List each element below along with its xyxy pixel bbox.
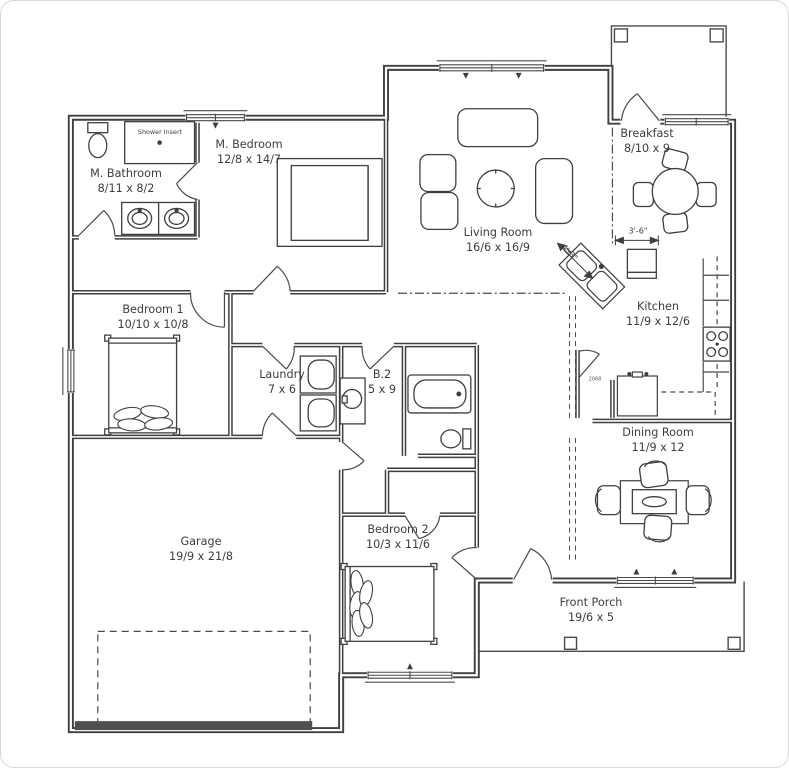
- room-name: M. Bedroom: [215, 138, 282, 153]
- room-label-m-bathroom: M. Bathroom 8/11 x 8/2: [90, 167, 162, 197]
- room-dims: 8/10 x 9: [620, 142, 673, 157]
- vanity-double-sink-icon: [122, 202, 195, 234]
- island-sink-icon: [617, 372, 657, 416]
- room-label-laundry: Laundry 7 x 6: [259, 368, 305, 398]
- bathtub-icon: [408, 375, 471, 413]
- room-name: Front Porch: [560, 596, 623, 611]
- room-dims: 19/6 x 5: [560, 611, 623, 626]
- room-label-m-bedroom: M. Bedroom 12/8 x 14/7: [215, 138, 282, 168]
- room-name: M. Bathroom: [90, 167, 162, 182]
- room-label-dining-room: Dining Room 11/9 x 12: [622, 426, 694, 456]
- living-furniture: [420, 109, 573, 230]
- garage-door: [75, 631, 312, 730]
- room-dims: 10/3 x 11/6: [366, 538, 430, 553]
- breakfast-table-icon: [633, 148, 716, 234]
- room-dims: 11/9 x 12: [622, 441, 694, 456]
- room-name: Living Room: [464, 226, 533, 241]
- toilet-icon-bath2: [441, 429, 471, 449]
- round-table-icon: [477, 170, 514, 207]
- room-dims: 10/10 x 10/8: [117, 318, 188, 333]
- room-label-bedroom-1: Bedroom 1 10/10 x 10/8: [117, 303, 188, 333]
- master-bed-icon: [277, 159, 382, 247]
- room-name: Garage: [169, 535, 233, 550]
- room-label-living-room: Living Room 16/6 x 16/9: [464, 226, 533, 256]
- room-dims: 8/11 x 8/2: [90, 182, 162, 197]
- loveseat-icon: [536, 159, 573, 224]
- room-label-kitchen: Kitchen 11/9 x 12/6: [626, 300, 690, 330]
- dining-set-icon: [595, 461, 711, 542]
- room-name: Bedroom 2: [366, 523, 430, 538]
- dimension-label-3-6: 3'-6": [629, 227, 648, 238]
- stove-icon: [703, 327, 730, 361]
- refrigerator-icon: [627, 249, 656, 278]
- room-dims: 12/8 x 14/7: [215, 153, 282, 168]
- room-label-bedroom-2: Bedroom 2 10/3 x 11/6: [366, 523, 430, 553]
- bed2-icon: [341, 564, 437, 645]
- toilet-icon-mbath: [88, 123, 108, 158]
- bath2-sink-icon: [340, 378, 365, 424]
- shower-insert-label: Shower Insert: [138, 128, 182, 136]
- bed1-icon: [105, 335, 180, 435]
- armchair-icon: [420, 155, 456, 192]
- room-label-bath-2: B.2 5 x 9: [368, 368, 396, 398]
- room-name: Kitchen: [626, 300, 690, 315]
- room-name: Dining Room: [622, 426, 694, 441]
- room-name: Laundry: [259, 368, 305, 383]
- room-label-front-porch: Front Porch 19/6 x 5: [560, 596, 623, 626]
- room-name: B.2: [368, 368, 396, 383]
- sofa-icon: [458, 109, 538, 147]
- room-dims: 5 x 9: [368, 383, 396, 398]
- room-name: Bedroom 1: [117, 303, 188, 318]
- floor-plan-image: M. Bathroom 8/11 x 8/2 M. Bedroom 12/8 x…: [0, 0, 789, 768]
- room-label-garage: Garage 19/9 x 21/8: [169, 535, 233, 565]
- deck-outline: [611, 26, 726, 119]
- room-label-breakfast: Breakfast 8/10 x 9: [620, 127, 673, 157]
- room-dims: 11/9 x 12/6: [626, 315, 690, 330]
- armchair-icon: [421, 193, 458, 230]
- room-dims: 7 x 6: [259, 383, 305, 398]
- room-dims: 16/6 x 16/9: [464, 241, 533, 256]
- room-dims: 19/9 x 21/8: [169, 550, 233, 565]
- door-size-label: 2068: [589, 377, 602, 384]
- room-name: Breakfast: [620, 127, 673, 142]
- washer-dryer-icon: [300, 356, 336, 431]
